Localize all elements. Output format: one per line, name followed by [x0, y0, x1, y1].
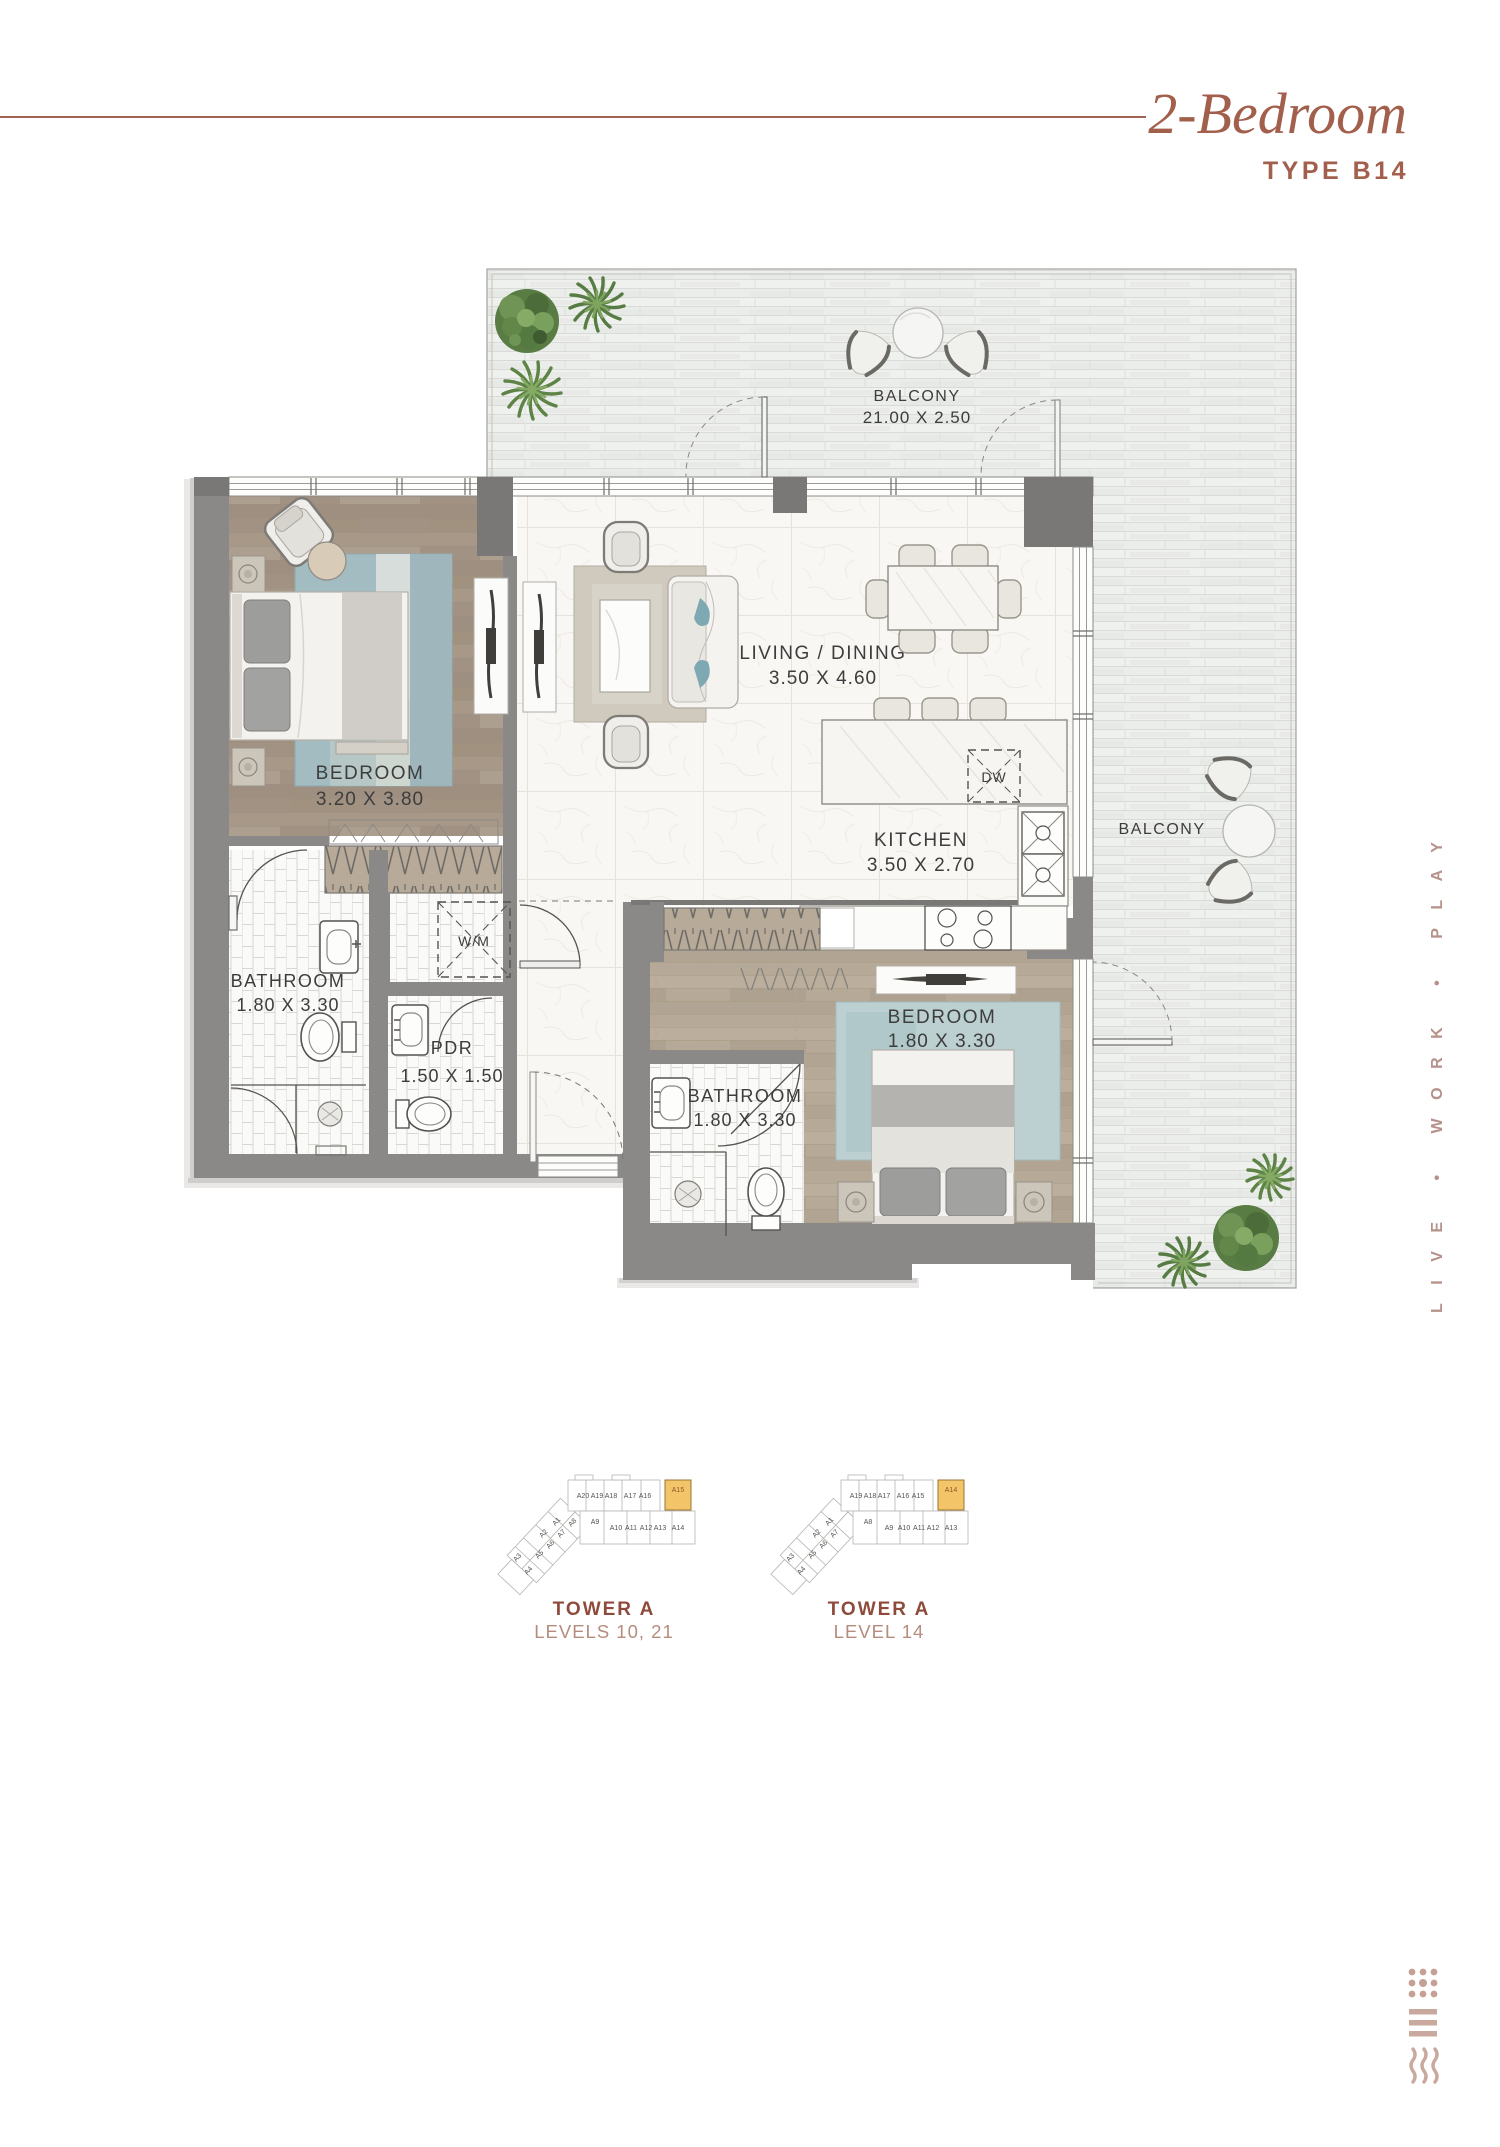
svg-text:A13: A13	[945, 1525, 958, 1532]
svg-text:2-Bedroom: 2-Bedroom	[1148, 81, 1407, 146]
svg-text:A17: A17	[878, 1493, 891, 1500]
svg-text:A12: A12	[927, 1525, 940, 1532]
svg-text:A15: A15	[912, 1493, 925, 1500]
svg-text:A16: A16	[897, 1493, 910, 1500]
svg-text:BATHROOM: BATHROOM	[688, 1086, 803, 1106]
svg-text:A8: A8	[864, 1519, 873, 1526]
svg-text:DW: DW	[981, 769, 1006, 785]
svg-text:BEDROOM: BEDROOM	[316, 763, 425, 784]
svg-text:1.80 X 3.30: 1.80 X 3.30	[693, 1110, 796, 1130]
svg-text:TOWER A: TOWER A	[553, 1599, 656, 1620]
svg-text:A13: A13	[654, 1525, 667, 1532]
svg-text:A18: A18	[864, 1493, 877, 1500]
svg-text:A17: A17	[624, 1493, 637, 1500]
svg-text:A16: A16	[639, 1493, 652, 1500]
svg-text:LIVE • WORK • PLAY: LIVE • WORK • PLAY	[1429, 824, 1446, 1313]
svg-text:1.80 X 3.30: 1.80 X 3.30	[888, 1031, 996, 1052]
svg-text:PDR: PDR	[431, 1038, 474, 1058]
svg-text:BATHROOM: BATHROOM	[231, 971, 346, 991]
svg-text:21.00 X 2.50: 21.00 X 2.50	[863, 408, 971, 427]
svg-text:BALCONY: BALCONY	[1119, 821, 1206, 838]
svg-text:A14: A14	[945, 1487, 958, 1494]
svg-text:A11: A11	[625, 1525, 637, 1532]
svg-text:A9: A9	[885, 1525, 894, 1532]
svg-text:3.50 X 4.60: 3.50 X 4.60	[769, 668, 877, 689]
svg-text:A19: A19	[850, 1493, 863, 1500]
svg-text:KITCHEN: KITCHEN	[874, 830, 968, 851]
svg-text:BEDROOM: BEDROOM	[888, 1007, 997, 1028]
svg-text:W/M: W/M	[458, 933, 490, 949]
svg-text:LIVING / DINING: LIVING / DINING	[739, 643, 906, 664]
svg-text:A15: A15	[672, 1487, 685, 1494]
svg-text:A14: A14	[672, 1525, 685, 1532]
svg-text:TOWER A: TOWER A	[828, 1599, 931, 1620]
svg-text:3.20 X 3.80: 3.20 X 3.80	[316, 789, 424, 810]
svg-text:A19: A19	[591, 1493, 604, 1500]
svg-text:BALCONY: BALCONY	[874, 388, 961, 405]
svg-text:A10: A10	[898, 1525, 911, 1532]
svg-text:A9: A9	[591, 1519, 600, 1526]
svg-text:LEVELS 10, 21: LEVELS 10, 21	[534, 1621, 674, 1642]
svg-text:A10: A10	[610, 1525, 623, 1532]
svg-text:3.50 X 2.70: 3.50 X 2.70	[867, 855, 975, 876]
svg-text:LEVEL 14: LEVEL 14	[834, 1621, 925, 1642]
svg-text:A12: A12	[640, 1525, 653, 1532]
svg-text:1.50 X 1.50: 1.50 X 1.50	[400, 1066, 503, 1086]
svg-text:TYPE B14: TYPE B14	[1263, 157, 1409, 185]
svg-text:A18: A18	[605, 1493, 618, 1500]
svg-text:1.80 X 3.30: 1.80 X 3.30	[236, 995, 339, 1015]
svg-text:A20: A20	[577, 1493, 590, 1500]
svg-text:A11: A11	[913, 1525, 925, 1532]
